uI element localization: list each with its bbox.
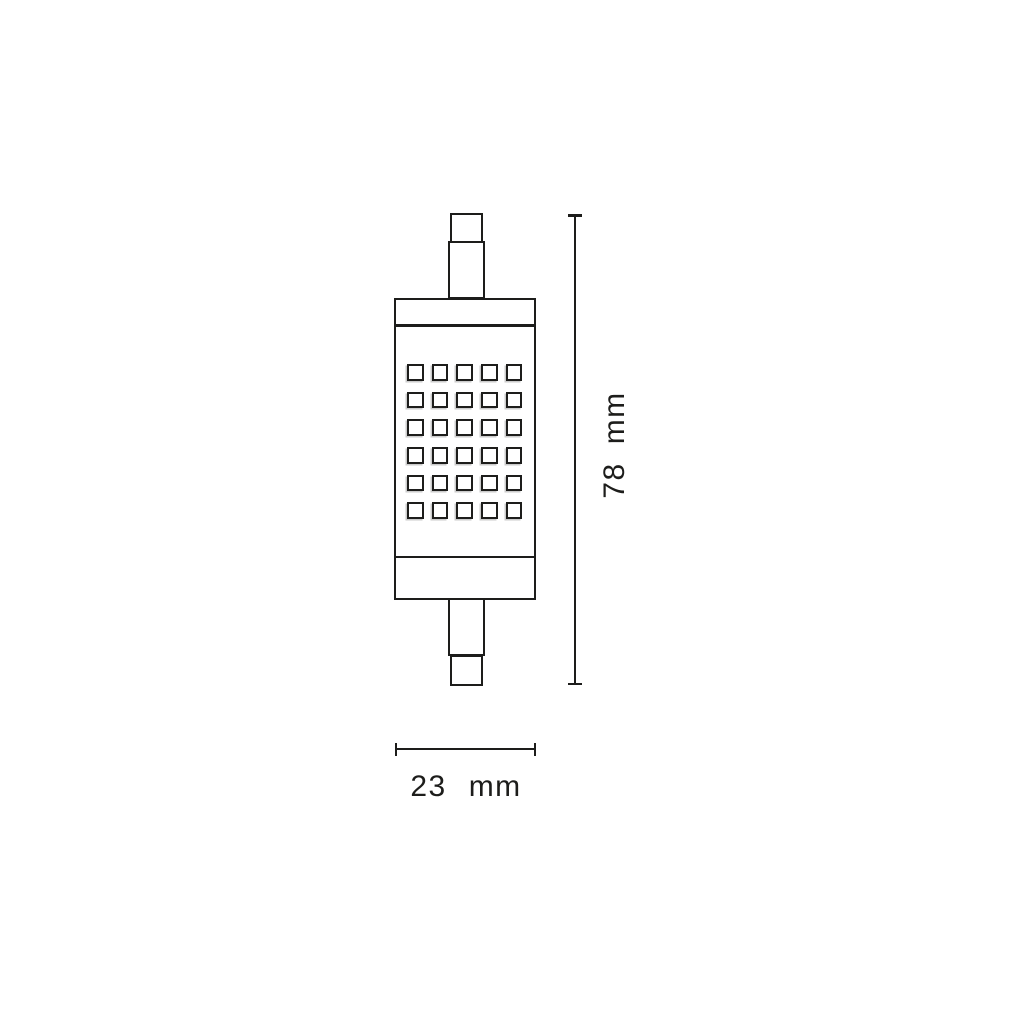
width-value: 23 [410,772,446,802]
led-chip [432,447,449,464]
led-chip [407,502,424,519]
height-dimension-label: 78 mm [600,391,630,498]
led-chip [456,364,473,381]
led-chip [506,447,523,464]
height-unit: mm [600,391,630,444]
led-chip [481,447,498,464]
height-dimension-bottom-tick [568,683,582,686]
led-chip [506,502,523,519]
height-dimension-line [574,215,576,684]
led-chip [432,475,449,492]
height-value: 78 [600,462,630,498]
led-chip [481,475,498,492]
led-chip [456,502,473,519]
led-chip [506,475,523,492]
led-chip [481,392,498,409]
lamp-top-contact-tip [450,213,483,244]
diagram-canvas: 78 mm 23 mm [0,0,1024,1024]
led-chip [456,475,473,492]
lamp-bottom-pin [448,598,485,656]
led-chip [506,392,523,409]
led-chip [432,419,449,436]
led-chip [407,475,424,492]
lamp-top-cap-separator-line [394,324,536,327]
led-chip-grid [407,364,522,519]
height-dimension-top-tick [568,214,582,217]
width-dimension-label: 23 mm [410,772,521,802]
led-chip [456,392,473,409]
led-chip [432,502,449,519]
width-dimension-line [395,748,536,750]
led-chip [432,364,449,381]
led-chip [481,364,498,381]
led-chip [506,364,523,381]
width-dimension-left-tick [395,743,398,757]
led-chip [481,419,498,436]
led-chip [456,447,473,464]
lamp-bottom-cap-separator-line [394,556,536,559]
led-chip [432,392,449,409]
lamp-top-pin [448,241,485,299]
width-dimension-right-tick [534,743,537,757]
led-chip [407,364,424,381]
led-chip [407,419,424,436]
width-unit: mm [469,772,522,802]
lamp-bottom-contact-tip [450,655,483,686]
led-chip [407,447,424,464]
led-chip [506,419,523,436]
led-chip [407,392,424,409]
led-chip [456,419,473,436]
led-chip [481,502,498,519]
